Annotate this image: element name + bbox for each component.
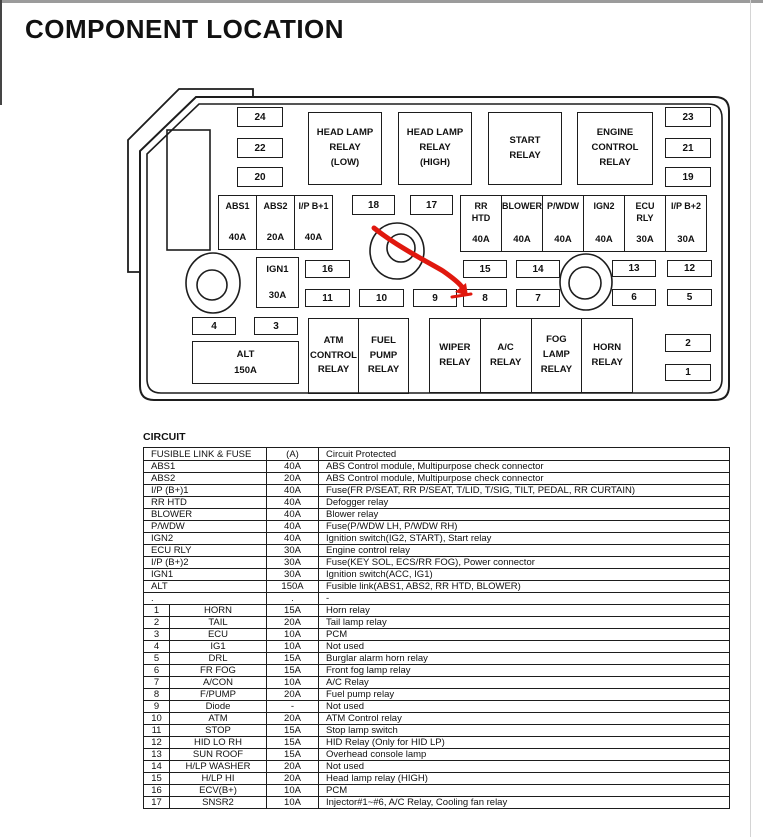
relay-group-bottom: WIPER RELAY A/C RELAY FOG LAMP RELAY HOR…	[429, 318, 633, 393]
fusible-link-ip-b1: I/P B+1 40A	[295, 196, 332, 249]
table-row: 11STOP15AStop lamp switch	[144, 725, 730, 737]
fuse-name-label: ABS2	[263, 201, 287, 213]
fuse-7: 7	[516, 289, 560, 307]
fuse-1: 1	[665, 364, 711, 381]
mount-hole-center-inner	[387, 234, 415, 262]
page-title: COMPONENT LOCATION	[25, 14, 344, 45]
table-row: 15H/LP HI20AHead lamp relay (HIGH)	[144, 773, 730, 785]
table-row: ABS220AABS Control module, Multipurpose …	[144, 473, 730, 485]
fuse-name-label: P/WDW	[547, 201, 579, 213]
relay-horn: HORN RELAY	[582, 319, 632, 392]
table-row: 14H/LP WASHER20ANot used	[144, 761, 730, 773]
fuse-9: 9	[413, 289, 457, 307]
fuse-21: 21	[665, 138, 711, 158]
fusible-link-group-abs: ABS1 40A ABS2 20A I/P B+1 40A	[218, 195, 333, 250]
page-top-border	[0, 0, 763, 3]
relay-head-lamp-high: HEAD LAMP RELAY (HIGH)	[398, 112, 472, 185]
fuse-name-label: RR HTD	[472, 201, 491, 224]
fuse-amp-label: 30A	[677, 234, 694, 245]
fuse-amp-label: 30A	[636, 234, 653, 245]
red-arrow-shaft	[374, 228, 462, 287]
table-row: 10ATM20AATM Control relay	[144, 713, 730, 725]
fuse-20: 20	[237, 167, 283, 187]
relay-atm-control: ATM CONTROL RELAY	[309, 319, 359, 393]
page-right-border	[750, 0, 751, 837]
table-row: 12HID LO RH15AHID Relay (Only for HID LP…	[144, 737, 730, 749]
table-row: BLOWER40ABlower relay	[144, 509, 730, 521]
table-row: I/P (B+)140AFuse(FR P/SEAT, RR P/SEAT, T…	[144, 485, 730, 497]
table-row: RR HTD40ADefogger relay	[144, 497, 730, 509]
table-row: 8F/PUMP20AFuel pump relay	[144, 689, 730, 701]
table-row: ECU RLY30AEngine control relay	[144, 545, 730, 557]
fuse-11: 11	[305, 289, 350, 307]
table-row: IGN130AIgnition switch(ACC, IG1)	[144, 569, 730, 581]
fuse-24: 24	[237, 107, 283, 127]
page-left-border	[0, 0, 2, 105]
relay-wiper: WIPER RELAY	[430, 319, 481, 392]
fuse-name-label: ALT	[237, 349, 255, 360]
fuse-10: 10	[359, 289, 404, 307]
table-row: P/WDW40AFuse(P/WDW LH, P/WDW RH)	[144, 521, 730, 533]
relay-ac: A/C RELAY	[481, 319, 532, 392]
table-row: 13SUN ROOF15AOverhead console lamp	[144, 749, 730, 761]
table-row: 1HORN15AHorn relay	[144, 605, 730, 617]
mount-hole-left	[186, 253, 240, 313]
fuse-8: 8	[463, 289, 507, 307]
relay-engine-control: ENGINE CONTROL RELAY	[577, 112, 653, 185]
fuse-6: 6	[612, 289, 656, 306]
table-row: 5DRL15ABurglar alarm horn relay	[144, 653, 730, 665]
table-row: 16ECV(B+)10APCM	[144, 785, 730, 797]
fuse-12: 12	[667, 260, 712, 277]
table-row: 3ECU10APCM	[144, 629, 730, 641]
circuit-table: FUSIBLE LINK & FUSE (A) Circuit Protecte…	[143, 447, 730, 809]
fuse-23: 23	[665, 107, 711, 127]
fuse-amp-label: 40A	[229, 232, 246, 243]
table-row: 9Diode-Not used	[144, 701, 730, 713]
fuse-name-label: ABS1	[225, 201, 249, 213]
fusible-link-group-right: RR HTD 40A BLOWER 40A P/WDW 40A IGN2 40A…	[460, 195, 707, 252]
fuse-13: 13	[612, 260, 656, 277]
fusible-link-pwdw: P/WDW 40A	[543, 196, 584, 251]
mount-hole-right	[560, 254, 612, 310]
fusible-link-abs2: ABS2 20A	[257, 196, 295, 249]
mount-hole-left-inner	[197, 270, 227, 300]
table-row: ALT150AFusible link(ABS1, ABS2, RR HTD, …	[144, 581, 730, 593]
fuse-amp-label: 40A	[595, 234, 612, 245]
mount-hole-right-inner	[569, 267, 601, 299]
fuse-16: 16	[305, 260, 350, 278]
fusible-link-rr-htd: RR HTD 40A	[461, 196, 502, 251]
fuse-2: 2	[665, 334, 711, 352]
relay-fog-lamp: FOG LAMP RELAY	[532, 319, 583, 392]
fusible-link-ecu-rly: ECU RLY 30A	[625, 196, 666, 251]
table-separator-row: ..-	[144, 593, 730, 605]
fuse-4: 4	[192, 317, 236, 335]
fusible-link-ip-b2: I/P B+2 30A	[666, 196, 706, 251]
relay-head-lamp-low: HEAD LAMP RELAY (LOW)	[308, 112, 382, 185]
fusebox-side-slot	[167, 130, 210, 250]
red-arrow-annotation	[374, 228, 471, 297]
fuse-17: 17	[410, 195, 453, 215]
fuse-amp-label: 20A	[267, 232, 284, 243]
table-row: 2TAIL20ATail lamp relay	[144, 617, 730, 629]
fuse-14: 14	[516, 260, 560, 278]
fuse-name-label: I/P B+2	[671, 201, 701, 213]
fusible-link-ign1: IGN1 30A	[256, 257, 299, 308]
relay-group-atm-fuel: ATM CONTROL RELAY FUEL PUMP RELAY	[308, 318, 409, 394]
fuse-amp-label: 40A	[513, 234, 530, 245]
fusible-link-ign2: IGN2 40A	[584, 196, 625, 251]
fuse-19: 19	[665, 167, 711, 187]
fuse-amp-label: 40A	[305, 232, 322, 243]
table-row: ABS140AABS Control module, Multipurpose …	[144, 461, 730, 473]
table-row: I/P (B+)230AFuse(KEY SOL, ECS/RR FOG), P…	[144, 557, 730, 569]
fusible-link-abs1: ABS1 40A	[219, 196, 257, 249]
relay-fuel-pump: FUEL PUMP RELAY	[359, 319, 408, 393]
col-header-amp: (A)	[267, 448, 319, 461]
fuse-amp-label: 40A	[472, 234, 489, 245]
fuse-5: 5	[667, 289, 712, 306]
fuse-name-label: IGN2	[593, 201, 614, 213]
fuse-name-label: ECU RLY	[635, 201, 654, 224]
fusible-link-alt: ALT 150A	[192, 341, 299, 384]
fuse-18: 18	[352, 195, 395, 215]
fuse-15: 15	[463, 260, 507, 278]
circuit-section-label: CIRCUIT	[143, 431, 186, 443]
table-row: IGN240AIgnition switch(IG2, START), Star…	[144, 533, 730, 545]
fusible-link-blower: BLOWER 40A	[502, 196, 543, 251]
table-header-row: FUSIBLE LINK & FUSE (A) Circuit Protecte…	[144, 448, 730, 461]
mount-hole-center	[370, 223, 424, 279]
col-header-circuit: Circuit Protected	[319, 448, 730, 461]
fuse-name-label: BLOWER	[502, 201, 542, 213]
table-row: 17SNSR210AInjector#1~#6, A/C Relay, Cool…	[144, 797, 730, 809]
fuse-amp-label: 40A	[554, 234, 571, 245]
fuse-amp-label: 30A	[269, 290, 286, 301]
table-row: 7A/CON10AA/C Relay	[144, 677, 730, 689]
col-header-fusible-link: FUSIBLE LINK & FUSE	[144, 448, 267, 461]
fuse-name-label: IGN1	[266, 264, 288, 275]
fuse-22: 22	[237, 138, 283, 158]
fuse-amp-label: 150A	[234, 365, 257, 376]
relay-start: START RELAY	[488, 112, 562, 185]
table-row: 6FR FOG15AFront fog lamp relay	[144, 665, 730, 677]
table-row: 4IG110ANot used	[144, 641, 730, 653]
fuse-name-label: I/P B+1	[298, 201, 328, 213]
fuse-3: 3	[254, 317, 298, 335]
